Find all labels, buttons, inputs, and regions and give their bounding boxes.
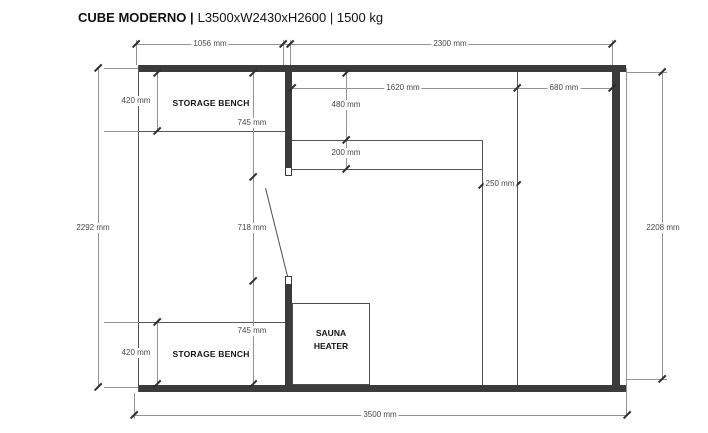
- partition-wall-upper: [285, 65, 292, 168]
- dim-label-745-bottom: 745 mm: [236, 326, 269, 336]
- door-swing-line: [265, 188, 288, 277]
- storage-bench-top-label: STORAGE BENCH: [172, 98, 249, 108]
- dim-label-200: 200 mm: [330, 148, 363, 158]
- dim-tick: [94, 383, 102, 391]
- floor-plan-drawing: CUBE MODERNO |L3500xW2430xH2600 | 1500 k…: [0, 0, 708, 433]
- left-wall-line: [138, 65, 139, 392]
- backrest-line: [292, 169, 482, 170]
- dim-label-420-top: 420 mm: [120, 96, 153, 106]
- dim-label-1620: 1620 mm: [384, 83, 421, 93]
- dim-label-420-bottom: 420 mm: [120, 348, 153, 358]
- right-outer-face-line: [626, 68, 627, 415]
- extension-line: [104, 322, 139, 323]
- title-specs: L3500xW2430xH2600 | 1500 kg: [198, 10, 384, 25]
- dim-label-2292: 2292 mm: [74, 223, 111, 233]
- door-jamb-lower: [285, 276, 292, 285]
- dim-tick: [623, 411, 631, 419]
- sauna-heater-label-line2: HEATER: [292, 340, 370, 353]
- storage-bench-bottom-label: STORAGE BENCH: [172, 349, 249, 359]
- bench-top-edge-line: [139, 131, 285, 132]
- divider-line-right: [517, 72, 518, 385]
- dim-label-745-top: 745 mm: [236, 118, 269, 128]
- dim-label-2208: 2208 mm: [644, 223, 681, 233]
- sauna-heater-label: SAUNA HEATER: [292, 327, 370, 353]
- dim-label-718: 718 mm: [236, 223, 269, 233]
- extension-line: [104, 387, 138, 388]
- divider-line-left: [482, 140, 483, 385]
- door-jamb-upper: [285, 167, 292, 176]
- sauna-heater-label-line1: SAUNA: [292, 327, 370, 340]
- dim-label-3500: 3500 mm: [361, 410, 398, 420]
- dim-label-680: 680 mm: [548, 83, 581, 93]
- page-title: CUBE MODERNO |L3500xW2430xH2600 | 1500 k…: [78, 10, 383, 25]
- bench-bottom-edge-line: [139, 322, 285, 323]
- dim-label-1056: 1056 mm: [191, 39, 228, 49]
- extension-line: [104, 68, 138, 69]
- extension-line: [104, 131, 139, 132]
- partition-wall-lower: [285, 284, 292, 392]
- bench-bottom-depth-dim-line: [157, 322, 158, 385]
- dim-label-480: 480 mm: [330, 100, 363, 110]
- upper-bench-front-line: [292, 140, 482, 141]
- dim-label-2300: 2300 mm: [431, 39, 468, 49]
- bench-top-depth-dim-line: [157, 73, 158, 131]
- dim-label-250: 250 mm: [484, 179, 517, 189]
- bottom-wall: [138, 385, 627, 392]
- title-brand: CUBE MODERNO |: [78, 10, 194, 25]
- right-wall: [612, 65, 620, 392]
- top-wall: [138, 65, 626, 72]
